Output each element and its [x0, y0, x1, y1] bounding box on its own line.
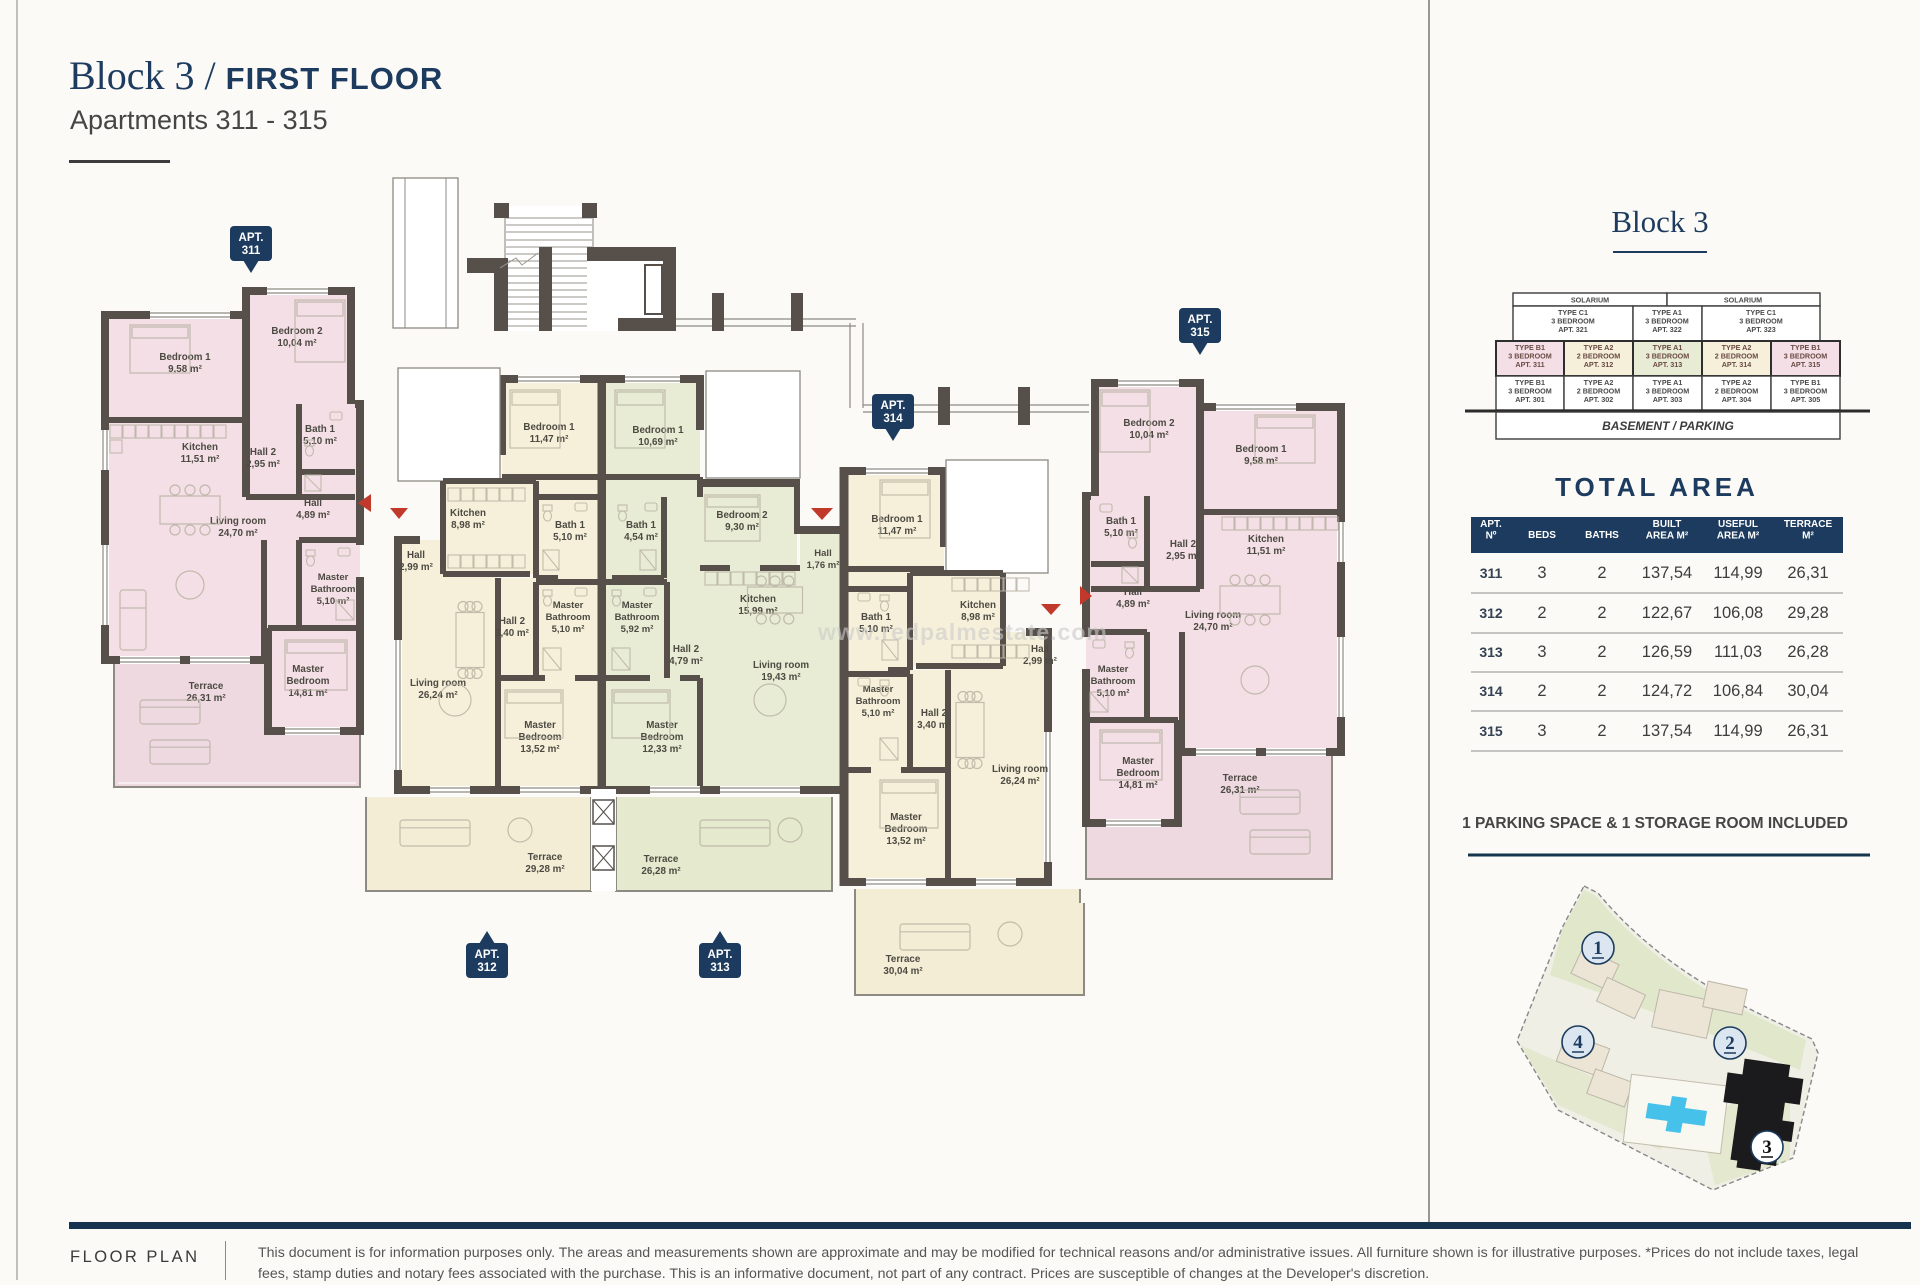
svg-text:APT.314: APT.314: [881, 400, 906, 425]
svg-text:106,84: 106,84: [1713, 682, 1763, 700]
svg-text:Bath 15,10 m²: Bath 15,10 m²: [1104, 516, 1139, 539]
svg-text:APT.312: APT.312: [475, 949, 500, 974]
svg-text:APT.315: APT.315: [1188, 314, 1213, 339]
svg-text:3: 3: [1537, 643, 1546, 661]
svg-text:Bedroom 110,69 m²: Bedroom 110,69 m²: [632, 425, 684, 448]
svg-text:2: 2: [1597, 682, 1606, 700]
svg-text:126,59: 126,59: [1642, 643, 1692, 661]
svg-text:Terrace26,28 m²: Terrace26,28 m²: [641, 854, 681, 877]
svg-text:3: 3: [1537, 564, 1546, 582]
svg-text:Bedroom 111,47 m²: Bedroom 111,47 m²: [523, 422, 575, 445]
svg-text:Hall 24,79 m²: Hall 24,79 m²: [669, 644, 704, 667]
svg-text:Terrace29,28 m²: Terrace29,28 m²: [525, 852, 565, 875]
svg-text:www.redpalmestate.com: www.redpalmestate.com: [817, 619, 1108, 645]
svg-text:APT.311: APT.311: [239, 232, 264, 257]
svg-text:1 PARKING SPACE & 1 STORAGE RO: 1 PARKING SPACE & 1 STORAGE ROOM INCLUDE…: [1462, 815, 1848, 832]
svg-text:Hall 22,95 m²: Hall 22,95 m²: [246, 447, 281, 470]
svg-text:TOTAL AREA: TOTAL AREA: [1555, 472, 1759, 502]
svg-text:BEDS: BEDS: [1528, 530, 1556, 541]
svg-text:Block 3: Block 3: [1611, 204, 1708, 239]
svg-text:Hall 22,95 m²: Hall 22,95 m²: [1166, 539, 1201, 562]
svg-text:106,08: 106,08: [1713, 604, 1763, 622]
svg-text:114,99: 114,99: [1713, 564, 1762, 582]
svg-text:26,31: 26,31: [1787, 722, 1828, 740]
svg-text:4: 4: [1573, 1032, 1583, 1053]
svg-text:26,31: 26,31: [1787, 564, 1828, 582]
svg-text:114,99: 114,99: [1713, 722, 1762, 740]
svg-text:Hall 23,40 m²: Hall 23,40 m²: [495, 616, 530, 639]
svg-text:Bath 15,10 m²: Bath 15,10 m²: [553, 520, 588, 543]
svg-text:122,67: 122,67: [1642, 604, 1692, 622]
svg-text:APT.313: APT.313: [708, 949, 733, 974]
svg-text:124,72: 124,72: [1642, 682, 1692, 700]
svg-text:USEFULAREA M²: USEFULAREA M²: [1717, 519, 1760, 542]
svg-text:Terrace30,04 m²: Terrace30,04 m²: [883, 954, 923, 977]
svg-text:Kitchen8,98 m²: Kitchen8,98 m²: [450, 508, 486, 531]
svg-text:29,28: 29,28: [1787, 604, 1828, 622]
svg-text:SOLARIUM: SOLARIUM: [1724, 296, 1762, 305]
svg-text:311: 311: [1480, 565, 1503, 581]
svg-text:2: 2: [1725, 1033, 1735, 1054]
svg-text:2: 2: [1597, 643, 1606, 661]
svg-text:BATHS: BATHS: [1585, 530, 1619, 541]
svg-text:2: 2: [1597, 564, 1606, 582]
svg-text:137,54: 137,54: [1642, 564, 1692, 582]
svg-text:2: 2: [1537, 682, 1546, 700]
svg-text:30,04: 30,04: [1787, 682, 1828, 700]
svg-text:137,54: 137,54: [1642, 722, 1692, 740]
svg-text:313: 313: [1479, 644, 1503, 660]
svg-text:Kitchen11,51 m²: Kitchen11,51 m²: [181, 442, 220, 465]
svg-text:26,28: 26,28: [1787, 643, 1828, 661]
svg-text:MasterBedroom14,81 m²: MasterBedroom14,81 m²: [1116, 756, 1159, 791]
svg-text:3: 3: [1762, 1137, 1772, 1158]
svg-text:2: 2: [1597, 722, 1606, 740]
svg-text:MasterBedroom13,52 m²: MasterBedroom13,52 m²: [884, 812, 927, 847]
svg-text:314: 314: [1479, 683, 1503, 699]
svg-text:3: 3: [1537, 722, 1546, 740]
svg-text:2: 2: [1537, 604, 1546, 622]
svg-text:SOLARIUM: SOLARIUM: [1571, 296, 1609, 305]
svg-text:BASEMENT / PARKING: BASEMENT / PARKING: [1602, 419, 1734, 433]
svg-text:Hall 23,40 m²: Hall 23,40 m²: [917, 708, 952, 731]
svg-text:Bedroom 210,04 m²: Bedroom 210,04 m²: [271, 326, 323, 349]
svg-text:Bath 14,54 m²: Bath 14,54 m²: [624, 520, 659, 543]
svg-text:312: 312: [1479, 605, 1503, 621]
svg-text:2: 2: [1597, 604, 1606, 622]
svg-text:Kitchen11,51 m²: Kitchen11,51 m²: [1247, 534, 1286, 557]
svg-text:Bedroom 210,04 m²: Bedroom 210,04 m²: [1123, 418, 1175, 441]
svg-text:Bedroom 111,47 m²: Bedroom 111,47 m²: [871, 514, 923, 537]
svg-text:315: 315: [1479, 723, 1503, 739]
svg-text:MasterBedroom14,81 m²: MasterBedroom14,81 m²: [286, 664, 329, 699]
svg-text:111,03: 111,03: [1714, 643, 1762, 661]
svg-text:Bath 15,10 m²: Bath 15,10 m²: [303, 424, 338, 447]
svg-text:1: 1: [1593, 938, 1603, 959]
